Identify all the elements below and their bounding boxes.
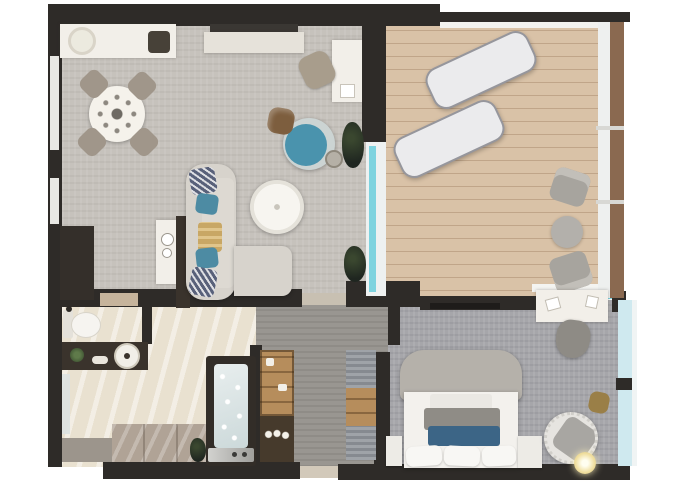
doorway-living-corridor (302, 293, 346, 305)
coffee-table (250, 180, 304, 234)
metal-side-table (325, 150, 343, 168)
window-left-upper (50, 56, 59, 150)
sofa-pillow-navy-top (188, 166, 218, 196)
sofa-chaise (234, 246, 292, 296)
wall-top-terrace (440, 12, 630, 22)
corridor-chest (260, 416, 294, 462)
bathroom-plant (190, 438, 206, 462)
vanity-plant (70, 348, 84, 362)
wall-wc (142, 300, 152, 344)
media-console (204, 32, 304, 53)
railing-divider-lower (596, 200, 624, 204)
bed-pillow-right (481, 445, 516, 467)
wall-living-terrace (362, 18, 386, 142)
bathtub-deck (208, 448, 254, 462)
wardrobe-right (346, 350, 376, 460)
terrace-glass-door-pane (369, 146, 376, 292)
wall-bedroom-stub (388, 307, 400, 345)
wardrobe-right-louver-bottom (346, 426, 376, 460)
plant-living-lower (344, 246, 366, 282)
console-plate-1 (161, 233, 174, 246)
bathroom-door (100, 293, 138, 306)
console-plate-2 (162, 248, 172, 258)
floor-plan (0, 0, 680, 487)
wall-bottom-left (103, 462, 300, 479)
bathtub-tap-1 (232, 452, 237, 457)
bed-pillow-center (444, 445, 481, 467)
kitchen-hob (148, 31, 170, 53)
wardrobe-right-louver-top (346, 350, 376, 388)
glass-wall-handle (616, 378, 632, 390)
wardrobe-right-shelves (346, 388, 376, 426)
living-desk-item (340, 84, 355, 98)
bathtub-tap-2 (242, 452, 247, 457)
bed-pillow-left (405, 445, 442, 467)
bed-throw-blue (428, 426, 500, 446)
kitchen-sink (68, 27, 96, 55)
entry-threshold (300, 466, 338, 478)
vanity-sink-drain (124, 353, 130, 359)
living-cabinet (60, 226, 94, 300)
nightstand-left (386, 436, 402, 466)
vanity-soap-tray (92, 356, 108, 364)
plant-living-upper (342, 122, 364, 168)
nightstand-right (518, 436, 542, 468)
bedroom-floor-lamp (574, 452, 596, 474)
toilet-flush-button (66, 306, 72, 312)
bedroom-tv (430, 303, 500, 309)
shower-glass (62, 374, 70, 434)
living-tv (210, 24, 298, 32)
bedroom-glass-frame (632, 300, 637, 466)
bathtub-water (214, 364, 248, 448)
shower-floor (62, 438, 112, 462)
terrace-table (551, 216, 583, 248)
window-left-lower (50, 178, 59, 224)
wardrobe-shelf-item-2 (278, 384, 287, 391)
bedroom-desk-item-2 (585, 295, 599, 309)
terrace-rail-top (440, 22, 608, 28)
wardrobe-shelf-item-1 (266, 358, 274, 366)
terrace-railing-wood (610, 22, 624, 298)
terrace-railing-glass (598, 22, 610, 298)
railing-divider-upper (596, 126, 624, 130)
toilet-bowl (71, 312, 101, 338)
sofa-pillow-teal-top (195, 193, 220, 216)
